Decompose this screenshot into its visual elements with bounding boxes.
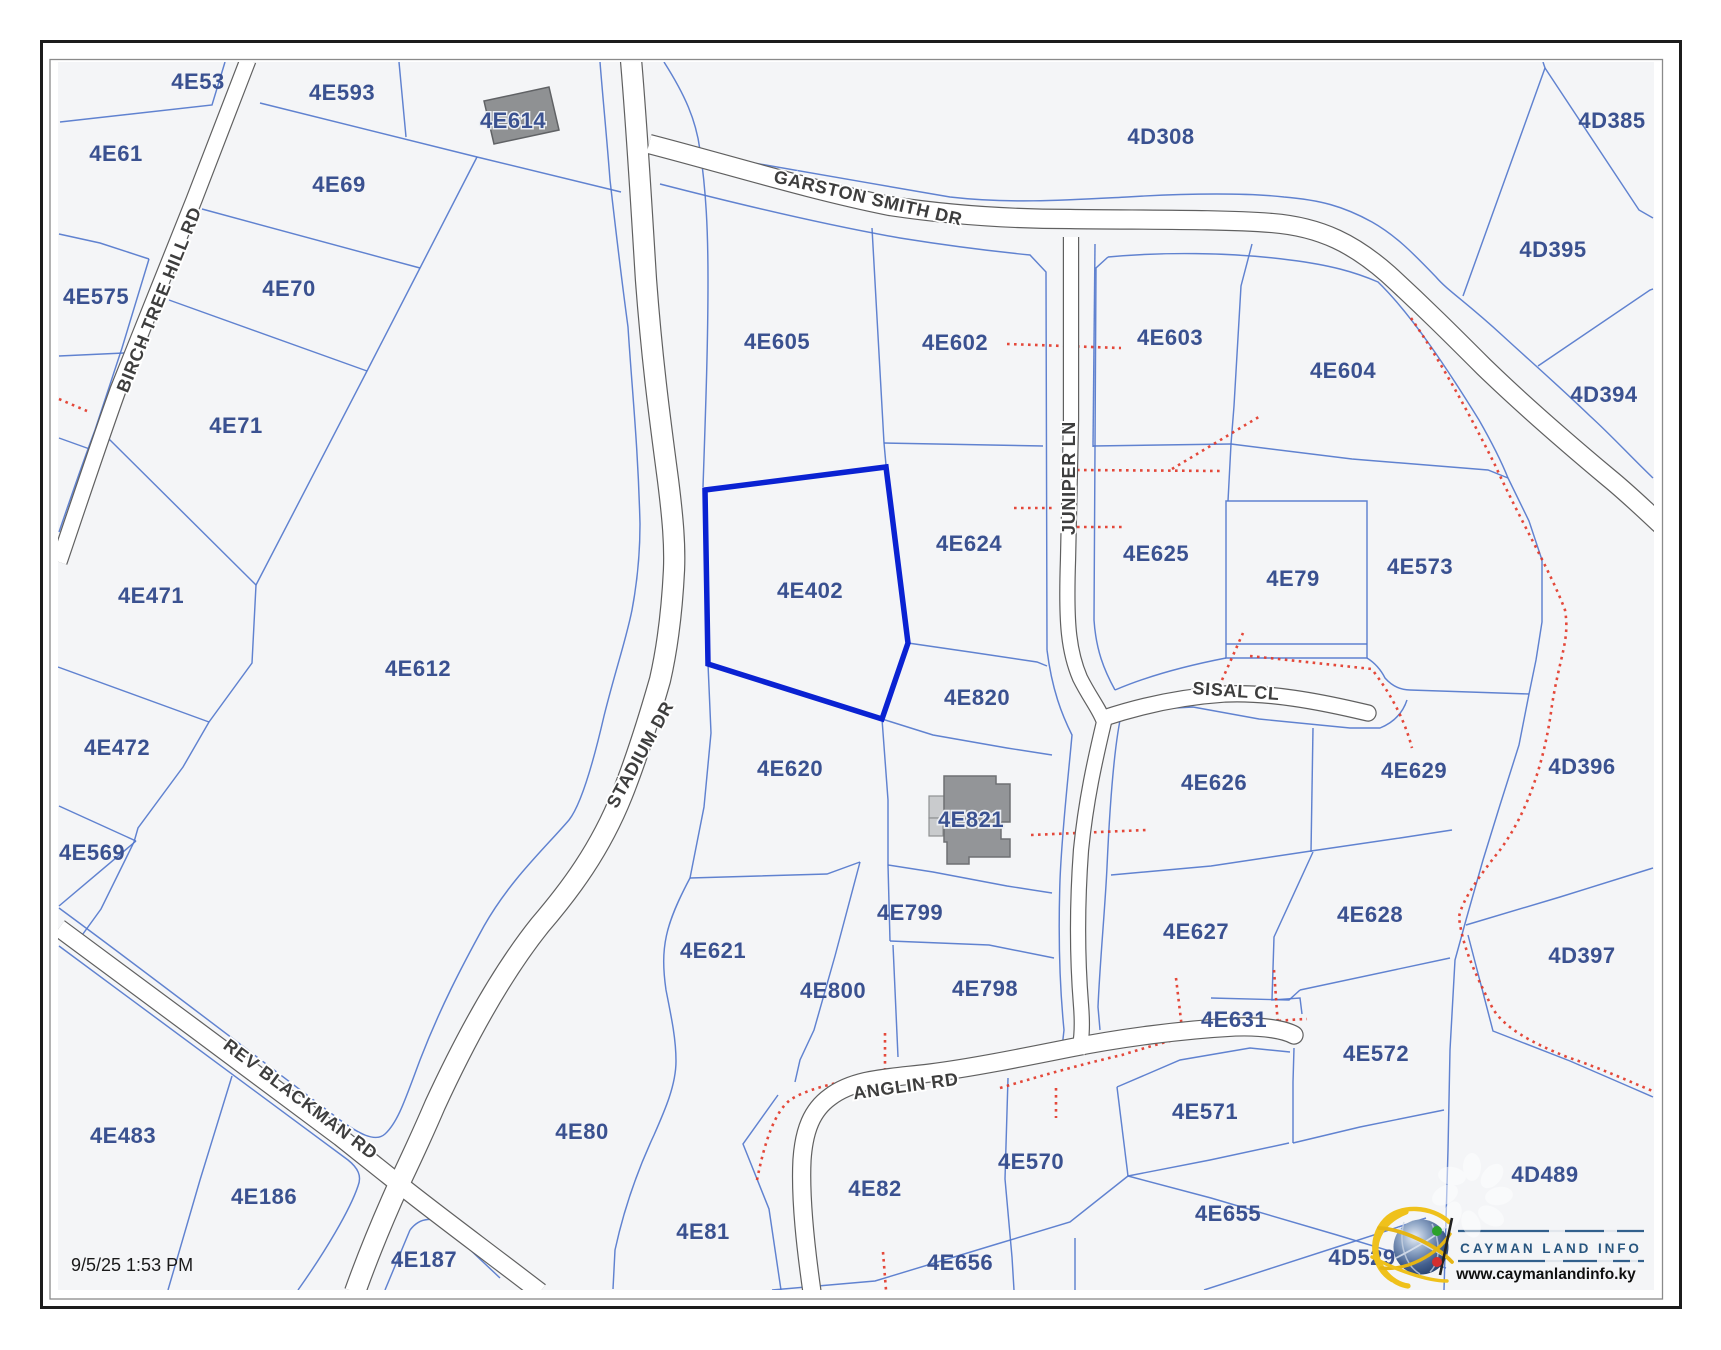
svg-text:4E798: 4E798	[952, 976, 1018, 1001]
svg-text:4E572: 4E572	[1343, 1041, 1409, 1066]
svg-text:4D385: 4D385	[1578, 108, 1645, 133]
svg-text:4E53: 4E53	[171, 69, 224, 94]
svg-text:4E61: 4E61	[89, 141, 142, 166]
svg-text:4E575: 4E575	[63, 284, 129, 309]
svg-text:4E569: 4E569	[59, 840, 125, 865]
svg-text:4E655: 4E655	[1195, 1201, 1261, 1226]
svg-text:4E186: 4E186	[231, 1184, 297, 1209]
svg-text:4E593: 4E593	[309, 80, 375, 105]
svg-text:4E605: 4E605	[744, 329, 810, 354]
svg-text:4E629: 4E629	[1381, 758, 1447, 783]
svg-text:4E573: 4E573	[1387, 554, 1453, 579]
svg-text:4D397: 4D397	[1548, 943, 1615, 968]
svg-text:4E625: 4E625	[1123, 541, 1189, 566]
svg-text:4D396: 4D396	[1548, 754, 1615, 779]
svg-text:4E626: 4E626	[1181, 770, 1247, 795]
svg-text:4E80: 4E80	[555, 1119, 608, 1144]
svg-text:4E602: 4E602	[922, 330, 988, 355]
svg-text:4D489: 4D489	[1511, 1162, 1578, 1187]
svg-text:4E656: 4E656	[927, 1250, 993, 1275]
svg-text:4E799: 4E799	[877, 900, 943, 925]
svg-text:4E620: 4E620	[757, 756, 823, 781]
svg-text:4D395: 4D395	[1519, 237, 1586, 262]
svg-text:4E69: 4E69	[312, 172, 365, 197]
svg-text:CAYMAN LAND INFO: CAYMAN LAND INFO	[1460, 1241, 1642, 1256]
svg-text:4E70: 4E70	[262, 276, 315, 301]
svg-text:4E483: 4E483	[90, 1123, 156, 1148]
svg-text:4E571: 4E571	[1172, 1099, 1238, 1124]
svg-text:4E570: 4E570	[998, 1149, 1064, 1174]
svg-text:4E612: 4E612	[385, 656, 451, 681]
svg-text:4E631: 4E631	[1201, 1007, 1267, 1032]
svg-text:4E821: 4E821	[938, 807, 1004, 832]
svg-text:4E820: 4E820	[944, 685, 1010, 710]
svg-text:4E603: 4E603	[1137, 325, 1203, 350]
svg-text:9/5/25 1:53 PM: 9/5/25 1:53 PM	[71, 1255, 193, 1275]
svg-text:4E627: 4E627	[1163, 919, 1229, 944]
svg-text:4E472: 4E472	[84, 735, 150, 760]
svg-text:JUNIPER LN: JUNIPER LN	[1059, 421, 1079, 535]
svg-text:4E614: 4E614	[480, 108, 546, 133]
svg-text:4E471: 4E471	[118, 583, 184, 608]
svg-text:www.caymanlandinfo.ky: www.caymanlandinfo.ky	[1455, 1266, 1636, 1283]
svg-text:4D529: 4D529	[1328, 1245, 1395, 1270]
svg-text:4E402: 4E402	[777, 578, 843, 603]
svg-text:4E800: 4E800	[800, 978, 866, 1003]
svg-text:4E624: 4E624	[936, 531, 1002, 556]
svg-text:4E81: 4E81	[676, 1219, 729, 1244]
svg-text:4E79: 4E79	[1266, 566, 1319, 591]
svg-text:4E71: 4E71	[209, 413, 262, 438]
svg-text:4D394: 4D394	[1570, 382, 1638, 407]
svg-text:4E604: 4E604	[1310, 358, 1376, 383]
svg-text:4D308: 4D308	[1127, 124, 1194, 149]
svg-text:4E187: 4E187	[391, 1247, 457, 1272]
svg-text:4E621: 4E621	[680, 938, 746, 963]
svg-text:4E628: 4E628	[1337, 902, 1403, 927]
svg-text:4E82: 4E82	[848, 1176, 901, 1201]
